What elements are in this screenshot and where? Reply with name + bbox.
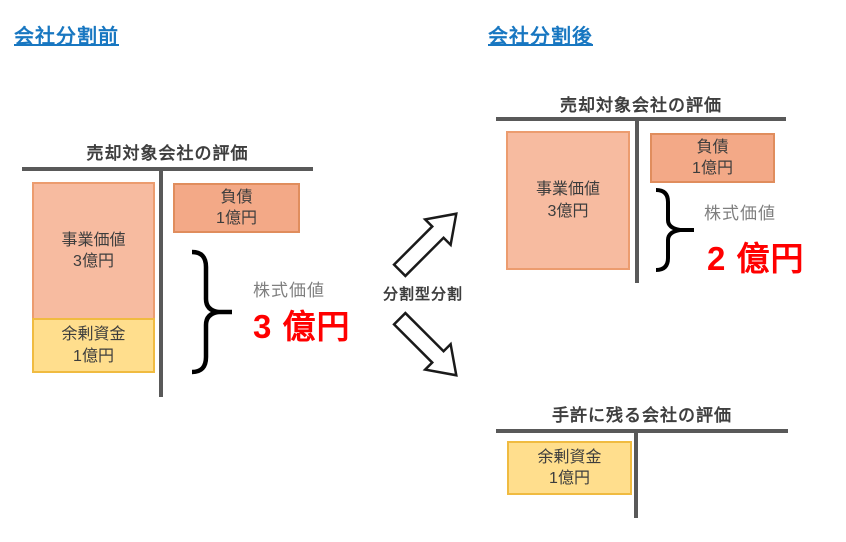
before-debt-label: 負債 — [220, 187, 252, 208]
after-sold-equity-amount: 2 億円 — [707, 232, 805, 280]
before-debt-amount: 1億円 — [216, 208, 257, 229]
before-business-value-amount: 3億円 — [73, 251, 114, 272]
before-business-value-label: 事業価値 — [61, 230, 125, 251]
curly-brace-icon — [184, 249, 234, 376]
after-sold-business-value-label: 事業価値 — [536, 179, 600, 200]
before-surplus-funds-amount: 1億円 — [73, 346, 114, 367]
after-sold-horizontal-divider — [496, 117, 786, 121]
curly-brace-icon — [648, 188, 698, 274]
after-remaining-diagram-title: 手許に残る会社の評価 — [496, 401, 788, 426]
after-remaining-horizontal-divider — [496, 429, 788, 433]
after-remaining-surplus-funds-amount: 1億円 — [549, 468, 590, 489]
after-sold-debt-label: 負債 — [696, 137, 728, 158]
before-diagram-title: 売却対象会社の評価 — [22, 139, 313, 164]
split-type-label: 分割型分割 — [383, 283, 463, 304]
arrow-up-right-icon — [392, 205, 464, 279]
after-sold-debt-box: 負債 1億円 — [650, 133, 775, 183]
after-sold-diagram-title: 売却対象会社の評価 — [496, 91, 786, 116]
after-remaining-vertical-divider — [634, 429, 638, 518]
before-vertical-divider — [159, 167, 163, 397]
before-equity-label: 株式価値 — [253, 276, 325, 301]
before-business-value-box: 事業価値 3億円 — [32, 182, 155, 320]
after-sold-equity-label: 株式価値 — [704, 199, 776, 224]
after-remaining-surplus-funds-label: 余剰資金 — [537, 447, 601, 468]
before-debt-box: 負債 1億円 — [173, 183, 300, 233]
before-equity-amount: 3 億円 — [253, 300, 351, 348]
heading-after-split[interactable]: 会社分割後 — [488, 20, 593, 49]
after-sold-business-value-box: 事業価値 3億円 — [506, 131, 630, 270]
after-sold-debt-amount: 1億円 — [692, 158, 733, 179]
after-sold-business-value-amount: 3億円 — [548, 201, 589, 222]
arrow-down-right-icon — [392, 310, 464, 384]
heading-before-split[interactable]: 会社分割前 — [14, 20, 119, 49]
after-remaining-surplus-funds-box: 余剰資金 1億円 — [507, 441, 632, 495]
after-sold-vertical-divider — [635, 117, 639, 283]
before-surplus-funds-box: 余剰資金 1億円 — [32, 318, 155, 373]
before-horizontal-divider — [22, 167, 313, 171]
before-surplus-funds-label: 余剰資金 — [61, 324, 125, 345]
company-split-diagram: 会社分割前 会社分割後 売却対象会社の評価 事業価値 3億円 余剰資金 1億円 … — [0, 0, 846, 542]
